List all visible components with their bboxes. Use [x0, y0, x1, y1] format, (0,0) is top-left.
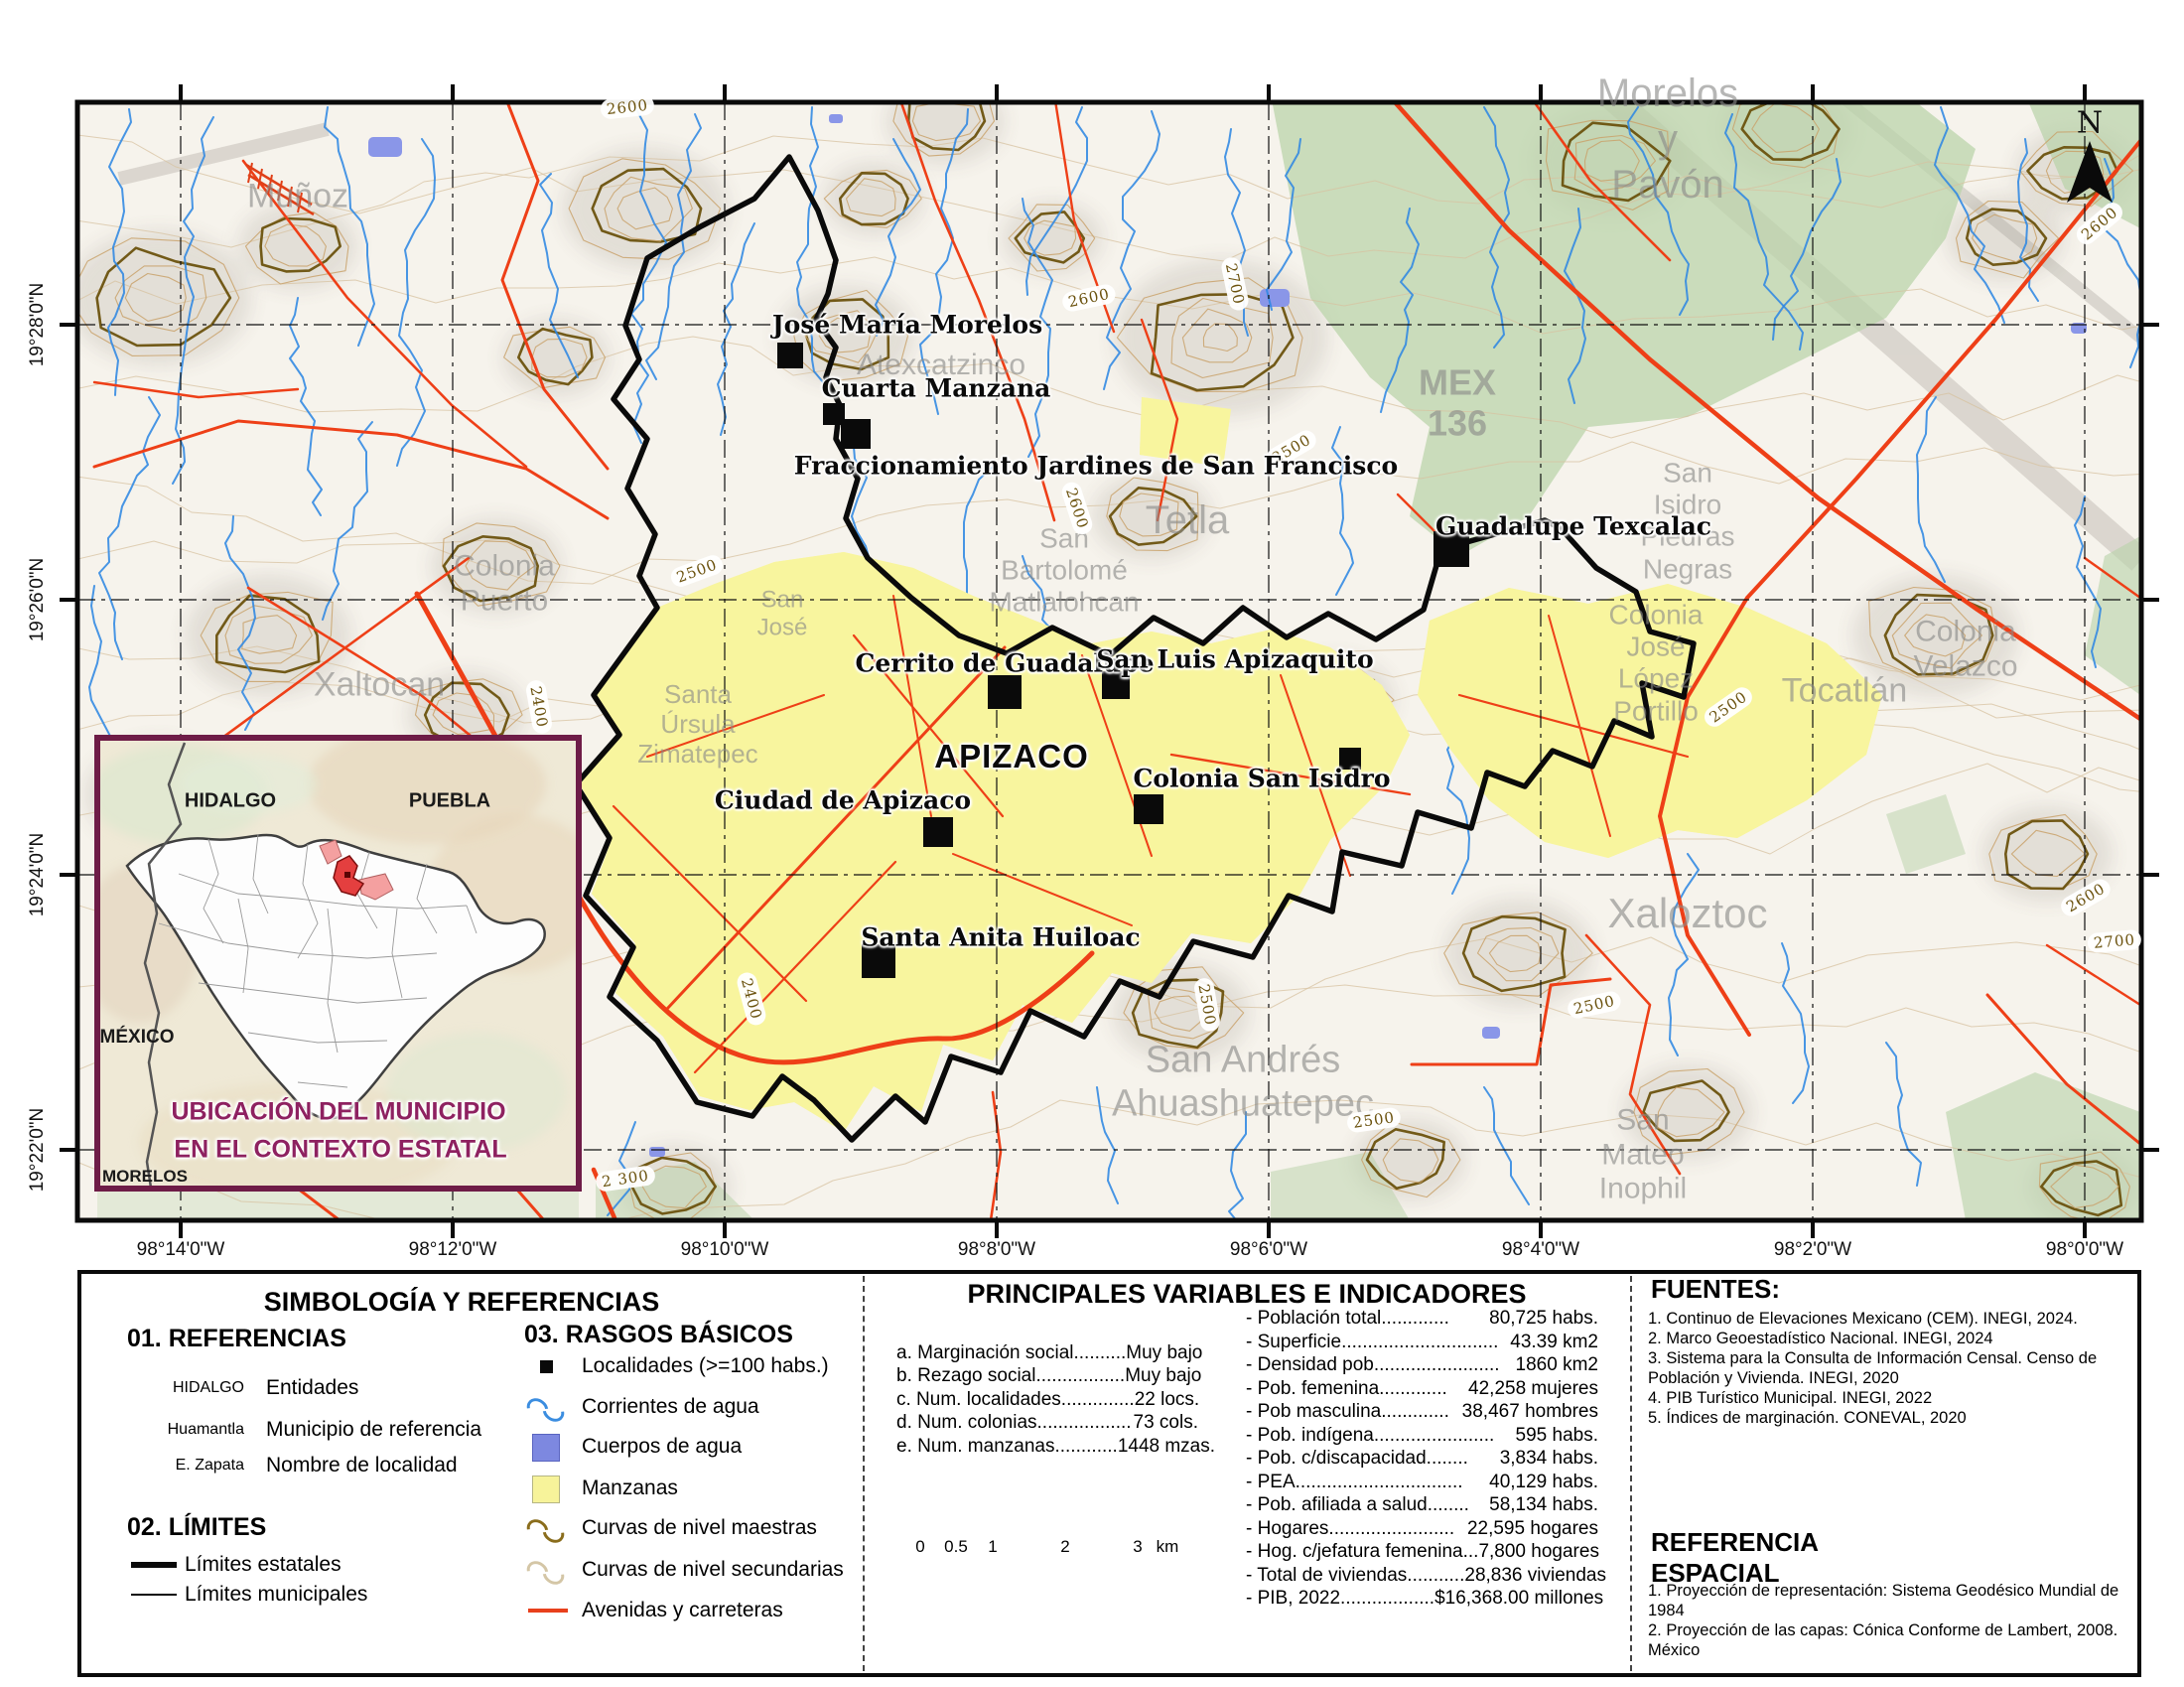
indicator-label: a. Marginación social.......... [896, 1342, 1126, 1365]
basemap-place-label: San José [757, 586, 808, 640]
feature-label: Curvas de nivel maestras [582, 1516, 817, 1540]
indicator-row: d. Num. colonias.................. 73 co… [896, 1412, 1198, 1435]
inset-map [79, 725, 606, 1201]
stat-row: - Densidad pob........................ 1… [1246, 1354, 1598, 1378]
fuentes-title: FUENTES: [1651, 1274, 1780, 1305]
panel-divider-1 [863, 1276, 865, 1671]
referencia-list: 1. Proyección de representación: Sistema… [1648, 1581, 2124, 1660]
stat-label: - Densidad pob........................ [1246, 1354, 1500, 1378]
stat-row: - Pob. afiliada a salud........ 58,134 h… [1246, 1494, 1598, 1518]
indicator-list: a. Marginación social.......... Muy bajo… [896, 1342, 1198, 1459]
stat-label: - Pob masculina............. [1246, 1401, 1449, 1425]
longitude-label: 98°2'0"W [1774, 1239, 1851, 1261]
limit-label: Límites estatales [185, 1553, 341, 1577]
indicator-value: Muy bajo [1125, 1365, 1201, 1388]
basemap-place-label: MEX 136 [1419, 362, 1496, 445]
stat-value: 7,800 hogares [1478, 1541, 1599, 1565]
reference-desc: Municipio de referencia [266, 1418, 481, 1442]
stat-value: 3,834 habs. [1500, 1448, 1598, 1472]
indicator-value: 73 cols. [1134, 1412, 1198, 1435]
longitude-label: 98°14'0"W [137, 1239, 225, 1261]
stat-value: 43.39 km2 [1510, 1332, 1598, 1355]
stat-value: 80,725 habs. [1489, 1308, 1598, 1332]
stat-row: - Pob. c/discapacidad........ 3,834 habs… [1246, 1448, 1598, 1472]
basemap-place-label: Colonia José López Portillo [1609, 600, 1704, 728]
panel-divider-2 [1630, 1276, 1632, 1671]
variables-title: PRINCIPALES VARIABLES E INDICADORES [967, 1279, 1526, 1310]
limit-row: Límites estatales [129, 1551, 341, 1579]
longitude-label: 98°0'0"W [2046, 1239, 2123, 1261]
locality-label: José María Morelos [772, 311, 1042, 340]
longitude-label: 98°8'0"W [958, 1239, 1035, 1261]
fuentes-list: 1. Continuo de Elevaciones Mexicano (CEM… [1648, 1309, 2120, 1428]
inset-state-hidalgo: HIDALGO [185, 790, 276, 813]
stat-row: - Población total............. 80,725 ha… [1246, 1308, 1598, 1332]
referencia-item: 1. Proyección de representación: Sistema… [1648, 1581, 2124, 1620]
indicator-label: c. Num. localidades.............. [896, 1389, 1135, 1412]
stat-value: 22,595 hogares [1467, 1518, 1598, 1542]
reference-desc: Nombre de localidad [266, 1454, 458, 1477]
feature-label: Localidades (>=100 habs.) [582, 1354, 829, 1378]
stat-row: - PIB, 2022.................. $16,368.00… [1246, 1588, 1598, 1612]
indicator-value: 22 locs. [1135, 1389, 1199, 1412]
longitude-label: 98°10'0"W [681, 1239, 769, 1261]
indicator-row: b. Rezago social................. Muy ba… [896, 1365, 1198, 1388]
inset-title-line1: UBICACIÓN DEL MUNICIPIO [171, 1098, 505, 1127]
stat-value: $16,368.00 millones [1434, 1588, 1603, 1612]
locality-label: APIZACO [934, 738, 1089, 775]
indicator-value: 1448 mzas. [1118, 1436, 1215, 1459]
stat-label: - Pob. indígena....................... [1246, 1425, 1494, 1449]
feature-icon [526, 1475, 572, 1502]
stat-row: - Hog. c/jefatura femenina... 7,800 hoga… [1246, 1541, 1598, 1565]
legend-title: SIMBOLOGÍA Y REFERENCIAS [264, 1287, 660, 1318]
stat-row: - Total de viviendas........... 28,836 v… [1246, 1565, 1598, 1589]
latitude-label: 19°24'0"N [27, 833, 49, 917]
stat-value: 40,129 habs. [1489, 1472, 1598, 1495]
locality-marker [841, 419, 871, 449]
stat-value: 38,467 hombres [1462, 1401, 1598, 1425]
fuente-item: 2. Marco Geoestadístico Nacional. INEGI,… [1648, 1329, 2120, 1348]
basemap-place-label: San Mateo Inophil [1599, 1103, 1687, 1206]
feature-icon [526, 1556, 572, 1584]
fuente-item: 5. Índices de marginación. CONEVAL, 2020 [1648, 1408, 2120, 1428]
limit-line-icon [129, 1551, 175, 1579]
basic-feature-row: Curvas de nivel secundarias [526, 1556, 844, 1584]
basemap-place-label: San Andrés Ahuashuatepec [1112, 1039, 1374, 1125]
basic-feature-row: Curvas de nivel maestras [526, 1514, 817, 1542]
longitude-label: 98°12'0"W [409, 1239, 497, 1261]
scalebar-label: 0 [915, 1537, 924, 1557]
locality-label: Ciudad de Apizaco [715, 786, 971, 815]
locality-label: Guadalupe Texcalac [1435, 512, 1711, 541]
basemap-place-label: Colonia Puerto [454, 550, 555, 619]
basemap-place-label: Xaltocan [314, 665, 445, 704]
feature-label: Cuerpos de agua [582, 1435, 742, 1459]
indicator-label: b. Rezago social................. [896, 1365, 1125, 1388]
section-01-title: 01. REFERENCIAS [127, 1325, 346, 1353]
inset-state-morelos: MORELOS [102, 1167, 188, 1187]
feature-icon [526, 1514, 572, 1542]
stat-label: - Hog. c/jefatura femenina... [1246, 1541, 1478, 1565]
stat-label: - Pob. c/discapacidad........ [1246, 1448, 1468, 1472]
stat-value: 58,134 habs. [1489, 1494, 1598, 1518]
basic-feature-row: Localidades (>=100 habs.) [526, 1352, 829, 1380]
feature-icon [526, 1393, 572, 1421]
scalebar-unit: km [1157, 1537, 1179, 1557]
stat-label: - PIB, 2022.................. [1246, 1588, 1434, 1612]
locality-marker [1134, 794, 1163, 824]
stat-label: - Superficie............................… [1246, 1332, 1498, 1355]
locality-marker [777, 343, 803, 368]
fuente-item: 4. PIB Turístico Municipal. INEGI, 2022 [1648, 1388, 2120, 1408]
scalebar-label: 2 [1060, 1537, 1069, 1557]
locality-label: Fraccionamiento Jardines de San Francisc… [794, 452, 1398, 481]
indicator-row: a. Marginación social.......... Muy bajo [896, 1342, 1198, 1365]
stat-row: - Hogares........................ 22,595… [1246, 1518, 1598, 1542]
inset-state-mexico: MÉXICO [100, 1027, 175, 1049]
referencia-title: REFERENCIA ESPACIAL [1651, 1527, 1818, 1589]
basemap-place-label: Muñoz [247, 177, 348, 215]
basemap-place-label: Morelos y Pavón [1597, 70, 1738, 208]
reference-desc: Entidades [266, 1376, 358, 1400]
stat-row: - Pob. indígena....................... 5… [1246, 1425, 1598, 1449]
stat-label: - Hogares........................ [1246, 1518, 1454, 1542]
inset-state-puebla: PUEBLA [409, 790, 490, 813]
feature-label: Curvas de nivel secundarias [582, 1558, 844, 1582]
basic-feature-row: Manzanas [526, 1475, 678, 1502]
locality-marker [988, 675, 1022, 709]
locality-marker [923, 817, 953, 847]
feature-icon [526, 1433, 572, 1461]
basemap-place-label: Colonia Velazco [1913, 616, 2017, 684]
stat-label: - Pob. femenina............. [1246, 1378, 1447, 1402]
stat-row: - Superficie............................… [1246, 1332, 1598, 1355]
feature-icon [526, 1597, 572, 1624]
stat-label: - Población total............. [1246, 1308, 1449, 1332]
longitude-label: 98°6'0"W [1230, 1239, 1307, 1261]
stat-value: 42,258 mujeres [1468, 1378, 1598, 1402]
inset-title-line2: EN EL CONTEXTO ESTATAL [174, 1136, 506, 1165]
scalebar-label: 0.5 [944, 1537, 968, 1557]
stat-row: - PEA................................ 40… [1246, 1472, 1598, 1495]
fuente-item: 1. Continuo de Elevaciones Mexicano (CEM… [1648, 1309, 2120, 1329]
stat-value: 28,836 viviendas [1464, 1565, 1606, 1589]
stat-label: - PEA................................ [1246, 1472, 1463, 1495]
stat-value: 595 habs. [1516, 1425, 1598, 1449]
stat-value: 1860 km2 [1516, 1354, 1598, 1378]
feature-icon [526, 1352, 572, 1380]
stat-row: - Pob. femenina............. 42,258 muje… [1246, 1378, 1598, 1402]
feature-label: Avenidas y carreteras [582, 1599, 783, 1622]
locality-label: Santa Anita Huiloac [861, 923, 1140, 952]
stat-label: - Pob. afiliada a salud........ [1246, 1494, 1469, 1518]
indicator-row: e. Num. manzanas............ 1448 mzas. [896, 1436, 1198, 1459]
basic-feature-row: Cuerpos de agua [526, 1433, 742, 1461]
basemap-place-label: Tocatlán [1782, 671, 1908, 710]
locality-label: Colonia San Isidro [1133, 765, 1390, 793]
latitude-label: 19°28'0"N [27, 283, 49, 367]
scalebar-label: 3 [1133, 1537, 1142, 1557]
indicator-label: e. Num. manzanas............ [896, 1436, 1118, 1459]
locality-label: San Luis Apizaquito [1096, 645, 1373, 674]
feature-label: Manzanas [582, 1476, 678, 1500]
basemap-place-label: Tetla [1146, 497, 1230, 543]
reference-sample: Huamantla [87, 1421, 244, 1439]
latitude-label: 19°26'0"N [27, 558, 49, 642]
longitude-label: 98°4'0"W [1502, 1239, 1579, 1261]
basic-feature-row: Avenidas y carreteras [526, 1597, 783, 1624]
limit-row: Límites municipales [129, 1581, 367, 1609]
north-label: N [2077, 106, 2103, 141]
basemap-place-label: Xaloztoc [1607, 890, 1767, 937]
limit-label: Límites municipales [185, 1583, 367, 1607]
limit-line-icon [129, 1581, 175, 1609]
section-02-title: 02. LÍMITES [127, 1513, 266, 1542]
reference-sample: HIDALGO [87, 1379, 244, 1397]
indicator-row: c. Num. localidades.............. 22 loc… [896, 1389, 1198, 1412]
basemap-place-label: Santa Úrsula Zimatepec [637, 680, 757, 770]
basemap-place-label: San Bartolomé Matlalohcan [990, 523, 1140, 620]
reference-sample: E. Zapata [87, 1457, 244, 1475]
stat-label: - Total de viviendas........... [1246, 1565, 1464, 1589]
basic-feature-row: Corrientes de agua [526, 1393, 759, 1421]
feature-label: Corrientes de agua [582, 1395, 759, 1419]
stats-list: - Población total............. 80,725 ha… [1246, 1308, 1598, 1612]
scalebar-label: 1 [988, 1537, 997, 1557]
locality-label: Cuarta Manzana [822, 374, 1051, 403]
map-sheet: 19°28'0"N19°26'0"N19°24'0"N19°22'0"N 98°… [0, 0, 2184, 1687]
fuente-item: 3. Sistema para la Consulta de Informaci… [1648, 1348, 2120, 1388]
indicator-value: Muy bajo [1126, 1342, 1202, 1365]
referencia-item: 2. Proyección de las capas: Cónica Confo… [1648, 1620, 2124, 1660]
stat-row: - Pob masculina............. 38,467 homb… [1246, 1401, 1598, 1425]
indicator-label: d. Num. colonias.................. [896, 1412, 1132, 1435]
latitude-label: 19°22'0"N [27, 1108, 49, 1193]
section-03-title: 03. RASGOS BÁSICOS [524, 1321, 793, 1349]
